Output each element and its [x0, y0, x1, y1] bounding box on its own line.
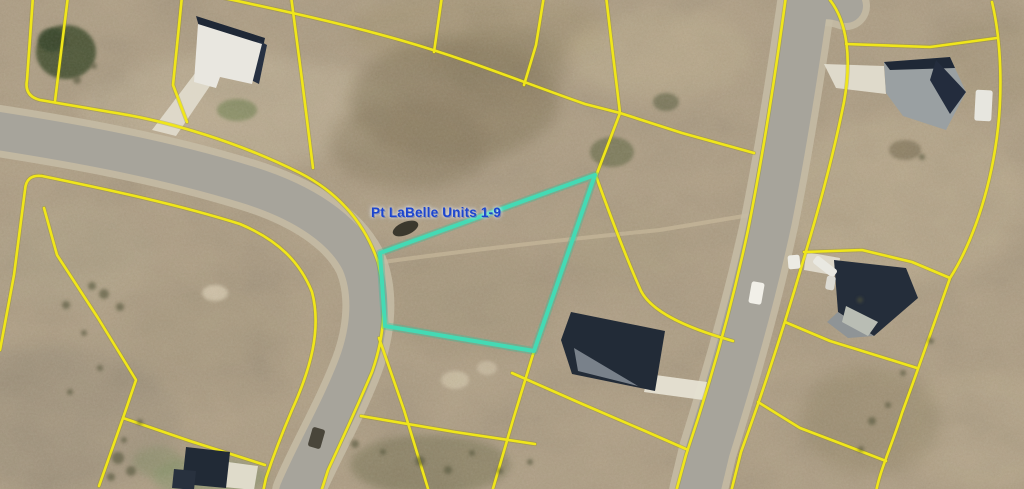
satellite-imagery — [0, 0, 1024, 489]
driveway — [224, 462, 258, 489]
vehicle — [974, 90, 993, 122]
east-road-top-bend — [806, 2, 846, 6]
aerial-parcel-map[interactable]: Pt LaBelle Units 1-9 — [0, 0, 1024, 489]
vehicle — [787, 255, 800, 270]
subdivision-label: Pt LaBelle Units 1-9 — [371, 205, 501, 220]
